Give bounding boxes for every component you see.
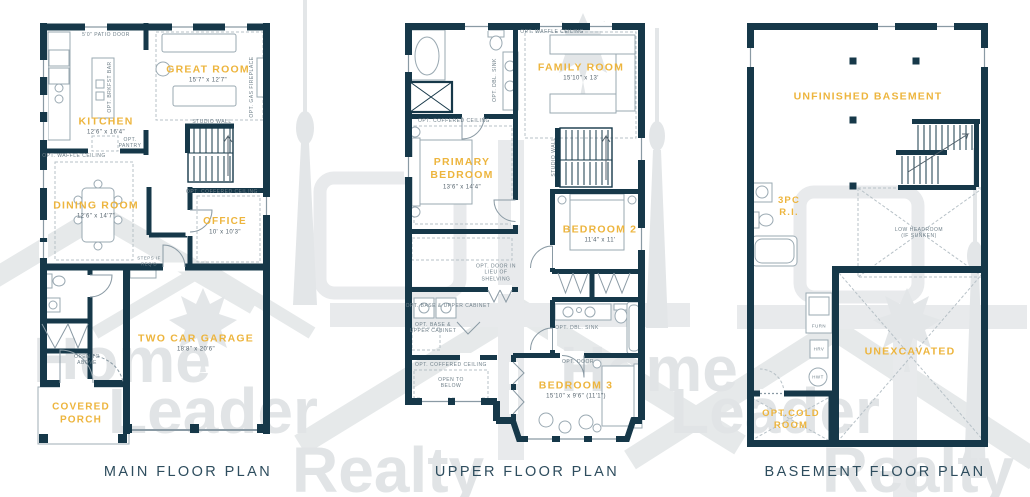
coffered-ceiling-primary-note: OPT. COFFERED CEILING xyxy=(418,118,490,124)
office-label: OFFICE xyxy=(203,216,247,229)
hrv-label: HRV xyxy=(814,346,825,352)
office-dims: 10' x 10'3" xyxy=(209,229,241,237)
kitchen-label: KITCHEN xyxy=(78,115,133,128)
studio-wall-note: STUDIO WALL xyxy=(551,137,557,176)
primary-bedroom-dims: 13'6" x 14'4" xyxy=(443,184,481,192)
floorplan-sheet: { "colors": { "wall_navy": "#163849", "a… xyxy=(0,0,1030,497)
waffle-ceiling-note: OPT. WAFFLE CEILING xyxy=(42,153,106,159)
staircase xyxy=(560,128,612,187)
garage-dims: 18'8" x 20'6" xyxy=(177,346,215,354)
great-room-dims: 15'7" x 12'7" xyxy=(189,77,227,85)
family-room-label: FAMILY ROOM xyxy=(538,61,624,74)
door-in-lieu-note: OPT. DOOR IN LIEU OF SHELVING xyxy=(476,264,516,283)
shower-stall xyxy=(410,82,452,112)
cold-room-label: OPT.COLD ROOM xyxy=(759,408,823,432)
furnace-label: FURN xyxy=(812,323,826,329)
pantry-note: OPT. PANTRY xyxy=(115,137,145,150)
studio-wall-note: STUDIO WALL xyxy=(192,119,231,125)
opt-door-note: OPT. DOOR xyxy=(562,359,594,365)
covered-porch-label: COVERED PORCH xyxy=(46,402,116,427)
bedroom-2-dims: 11'4" x 11' xyxy=(585,237,616,245)
coffered-ceiling-note: OPT. COFFERED CEILING xyxy=(186,189,258,195)
base-upper-cabinet-note-2: OPT. BASE & UPPER CABINET xyxy=(409,322,457,335)
waffle-ceiling-note: OPT. WAFFLE CEILING xyxy=(520,29,584,35)
unexcavated-label: UNEXCAVATED xyxy=(865,345,956,358)
support-posts xyxy=(850,58,920,190)
family-room-dims: 15'10" x 13' xyxy=(563,75,599,83)
primary-bedroom-label: PRIMARY BEDROOM xyxy=(423,156,501,182)
double-sink-ensuite-note: OPT. DBL. SINK xyxy=(492,58,498,102)
bedroom-3-dims: 15'10" x 9'6" (11'1") xyxy=(546,393,606,401)
upper-floor-plan: OPT. WAFFLE CEILING FAMILY ROOM 15'10" x… xyxy=(400,10,665,490)
open-to-above-note: OPEN TO ABOVE xyxy=(70,354,104,367)
bedroom-3-label: BEDROOM 3 xyxy=(539,379,613,392)
unfinished-basement-label: UNFINISHED BASEMENT xyxy=(794,90,943,103)
great-room-label: GREAT ROOM xyxy=(166,63,250,76)
main-floor-plan-title: MAIN FLOOR PLAN xyxy=(104,463,272,481)
double-sink-bath-note: OPT. DBL. SINK xyxy=(555,325,599,331)
walls xyxy=(747,23,988,447)
basement-floor-plan-title: BASEMENT FLOOR PLAN xyxy=(765,463,986,481)
garage-label: TWO CAR GARAGE xyxy=(138,332,254,345)
breakfast-bar-note: OPT. BRKFST BAR xyxy=(107,61,113,112)
base-upper-cabinet-note-1: OPT. BASE & UPPER CABINET xyxy=(406,303,491,309)
kitchen-dims: 12'6" x 16'4" xyxy=(87,129,125,137)
dashed-regions xyxy=(752,188,983,440)
open-to-below-note: OPEN TO BELOW xyxy=(438,377,464,390)
garage-front xyxy=(39,424,266,443)
main-floor-drawing xyxy=(30,10,300,455)
hwt-label: HWT xyxy=(812,374,824,380)
upper-floor-plan-title: UPPER FLOOR PLAN xyxy=(435,463,619,481)
low-headroom-note: LOW HEADROOM (IF SUNKEN) xyxy=(891,227,947,240)
main-floor-plan: 5'0" PATIO DOOR GREAT ROOM 15'7" x 12'7"… xyxy=(30,10,300,490)
coffered-ceiling-open-note: OPT. COFFERED CEILING xyxy=(415,362,487,368)
gas-fireplace-note: OPT. GAS FIREPLACE xyxy=(249,56,255,117)
bedroom-2-label: BEDROOM 2 xyxy=(563,223,637,236)
basement-floor-plan: UNFINISHED BASEMENT 3PC R.I. LOW HEADROO… xyxy=(740,10,995,490)
steps-note: STEPS IF REQ'D xyxy=(135,256,163,267)
dining-room-dims: 12'6" x 14'7" xyxy=(77,213,115,221)
basement-floor-drawing xyxy=(740,10,995,455)
dining-room-label: DINING ROOM xyxy=(53,199,139,212)
patio-door-note: 5'0" PATIO DOOR xyxy=(82,32,130,38)
three-pc-rough-in-label: 3PC R.I. xyxy=(776,195,802,219)
staircase xyxy=(188,128,233,182)
